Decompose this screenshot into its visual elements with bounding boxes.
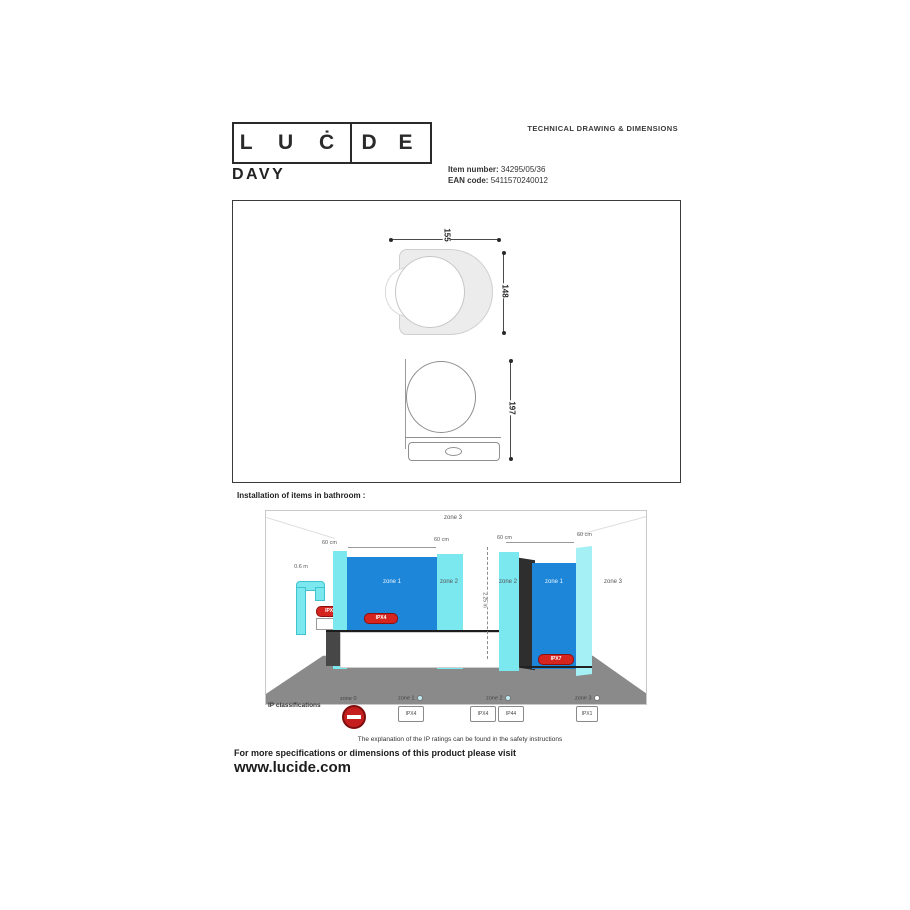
ceiling-line-left <box>265 516 335 539</box>
condensation-icon <box>594 695 600 701</box>
zone3-right-label: zone 3 <box>604 579 622 585</box>
front-view-knob <box>445 447 462 456</box>
legend-zone3-label: zone 3 <box>575 695 600 701</box>
dim-line-shower <box>506 542 574 543</box>
document-title: TECHNICAL DRAWING & DIMENSIONS <box>420 124 678 133</box>
shower-zone1-label: zone 1 <box>532 579 576 585</box>
website-link[interactable]: www.lucide.com <box>234 759 351 776</box>
front-view-glass-ball <box>406 361 476 433</box>
legend-zone1-text: zone 1 <box>398 695 415 701</box>
shower-ip-badge: IPX7 <box>538 654 574 665</box>
shower-tray-edge <box>520 666 592 668</box>
legend-zone1-label: zone 1 <box>398 695 423 701</box>
droplet-icon <box>417 695 423 701</box>
legend-zone0-label: zone 0 <box>340 696 357 702</box>
bathtub-front <box>340 632 516 668</box>
ean-code-label: EAN code: <box>448 176 488 185</box>
bathroom-diagram: zone 3 60 cm 60 cm 60 cm 60 cm 0.6 m IPX… <box>265 510 647 705</box>
zone3-ip-box: IPX1 <box>576 706 598 722</box>
legend-zone2-label: zone 2 <box>486 695 511 701</box>
logo-text-right: D E <box>352 131 430 155</box>
faucet-stub <box>315 587 325 601</box>
technical-sheet-page: L U Ċ D E TECHNICAL DRAWING & DIMENSIONS… <box>0 0 910 910</box>
zone2-ip-box-2: IP44 <box>498 706 524 722</box>
splash-icon <box>505 695 511 701</box>
depth-dimension-value: 148 <box>501 283 509 298</box>
dim-60cm-2: 60 cm <box>434 537 449 543</box>
dim-60cm-4: 60 cm <box>577 532 592 538</box>
item-number-line: Item number: 34295/05/36 <box>448 165 545 174</box>
zone2-ip-box-1: IPX4 <box>470 706 496 722</box>
legend-note: The explanation of the IP ratings can be… <box>280 736 640 743</box>
shower-glass-panel <box>576 546 592 676</box>
dim-60cm-3: 60 cm <box>497 535 512 541</box>
dim-60cm-1: 60 cm <box>322 540 337 546</box>
height-dimension-value: 197 <box>508 400 516 415</box>
lucide-logo: L U Ċ D E <box>232 122 432 164</box>
top-view-glass-circle <box>395 256 465 328</box>
shower-zone2-strip <box>499 552 519 671</box>
zone3-top-label: zone 3 <box>444 515 462 521</box>
ean-code-line: EAN code: 5411570240012 <box>448 176 548 185</box>
technical-drawing-panel: 155 148 197 <box>232 200 681 483</box>
bath-zone1-label: zone 1 <box>347 579 437 585</box>
front-view-shelf-line <box>405 437 501 438</box>
legend-zone3-text: zone 3 <box>575 695 592 701</box>
zone0-prohibited-icon <box>342 705 366 729</box>
bathroom-section-title: Installation of items in bathroom : <box>237 491 365 500</box>
bath-ip-badge: IPX4 <box>364 613 398 624</box>
product-name: DAVY <box>232 166 285 184</box>
room-height-dim-value: 2.25 m <box>482 592 488 607</box>
footer-text: For more specifications or dimensions of… <box>234 748 516 758</box>
legend-zone2-text: zone 2 <box>486 695 503 701</box>
item-number-label: Item number: <box>448 165 499 174</box>
bath-zone2-label: zone 2 <box>440 579 458 585</box>
ean-code-value: 5411570240012 <box>491 176 548 185</box>
width-dimension-value: 155 <box>443 227 451 242</box>
legend-title: IP classifications <box>268 702 321 709</box>
bathtub-end-dark <box>326 632 340 666</box>
logo-text-left: L U Ċ <box>234 131 350 155</box>
item-number-value: 34295/05/36 <box>501 165 546 174</box>
shower-zone2-label: zone 2 <box>499 579 517 585</box>
dim-line-bath <box>348 547 436 548</box>
zone1-ip-box: IPX4 <box>398 706 424 722</box>
faucet-riser <box>296 587 306 635</box>
dim-basin: 0.6 m <box>284 564 318 570</box>
